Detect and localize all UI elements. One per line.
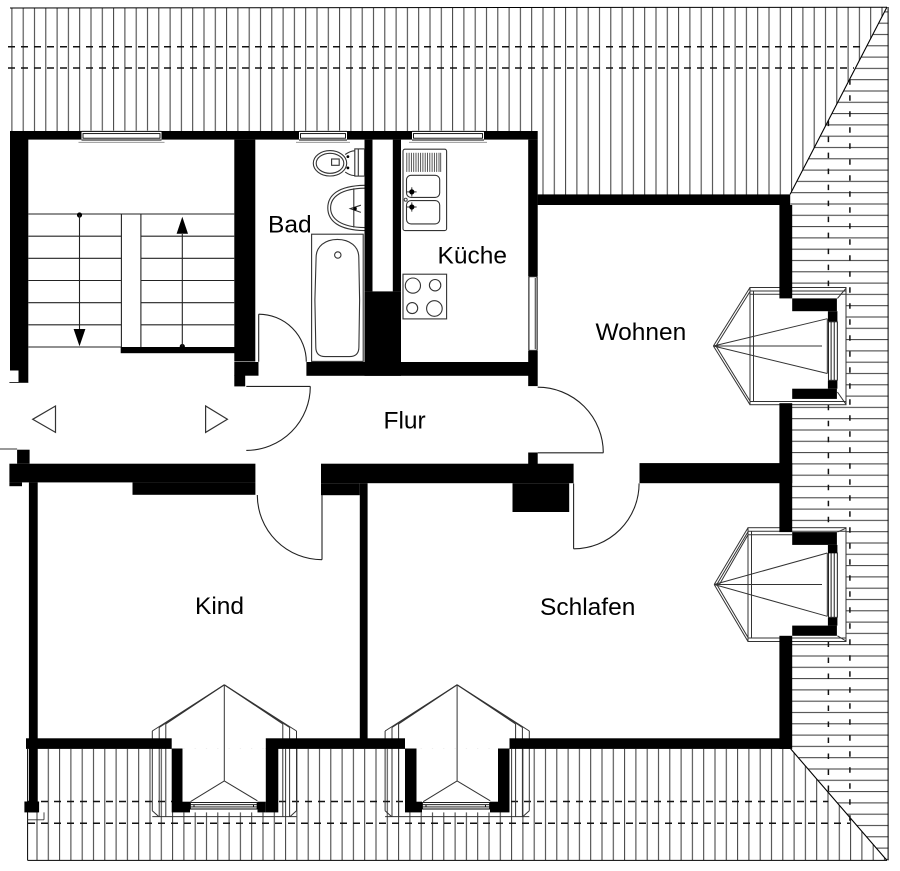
svg-text:Schlafen: Schlafen — [540, 594, 635, 621]
svg-text:Bad: Bad — [268, 212, 312, 239]
svg-text:Wohnen: Wohnen — [596, 319, 687, 346]
svg-text:Küche: Küche — [438, 243, 507, 270]
svg-text:Kind: Kind — [195, 593, 244, 620]
svg-text:Flur: Flur — [384, 408, 426, 435]
